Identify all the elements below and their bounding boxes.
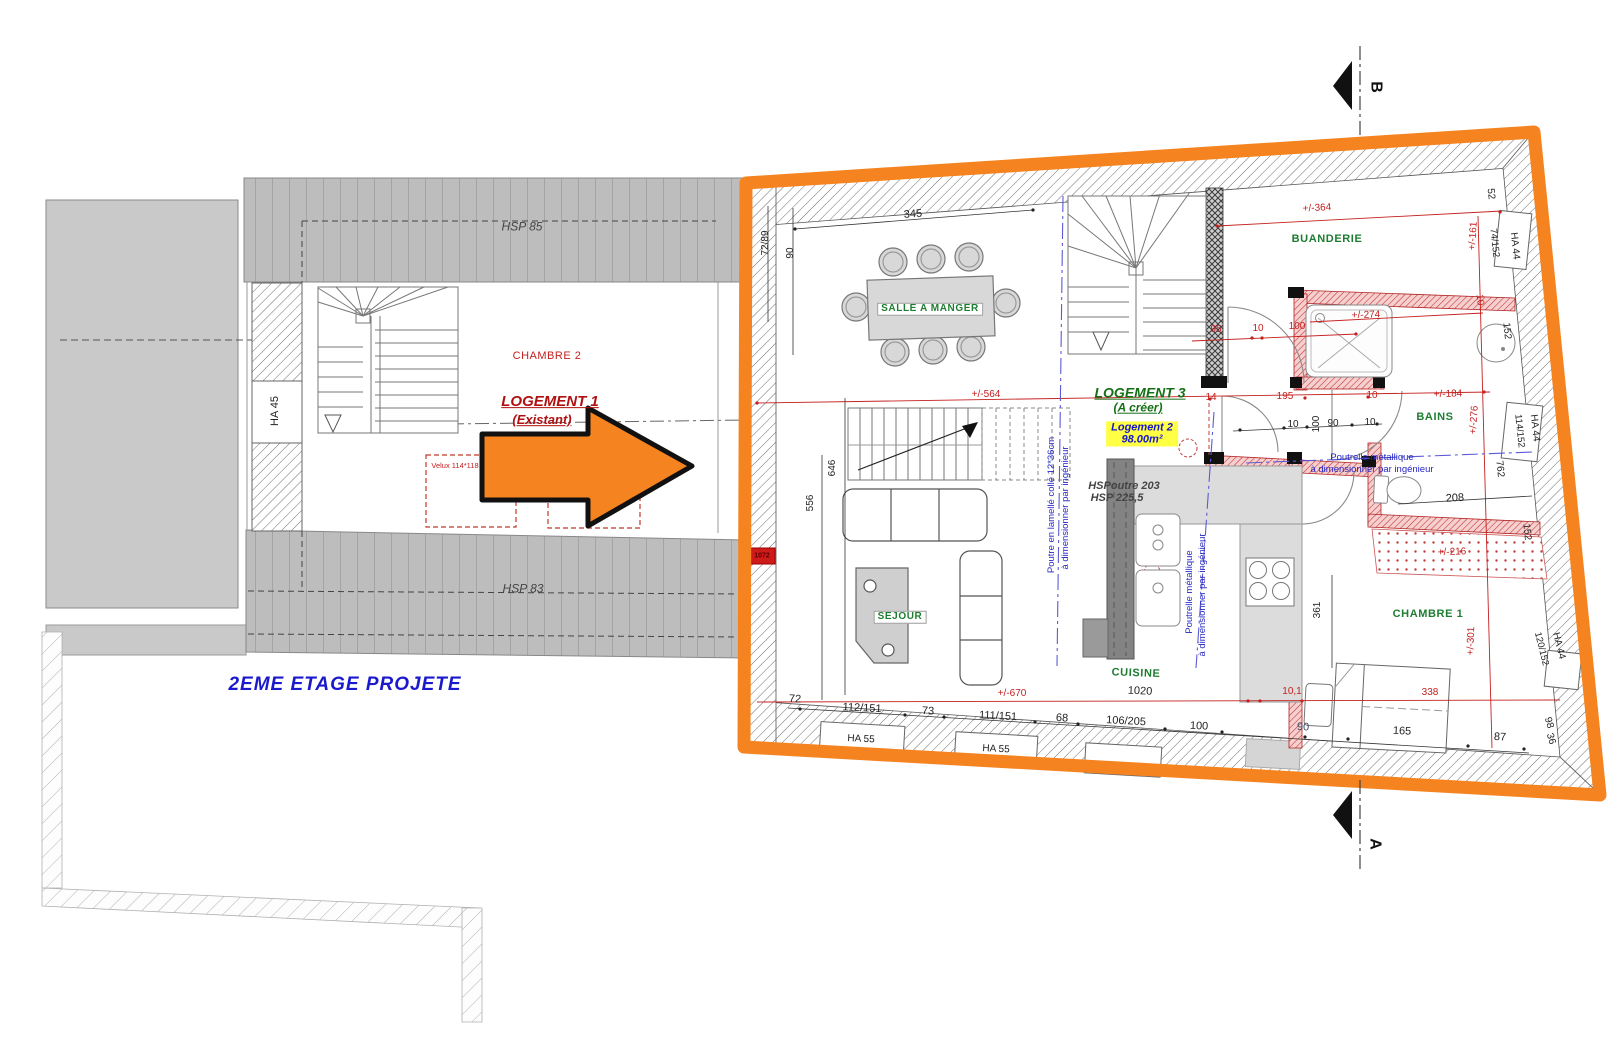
room-label-bedroom: CHAMBRE 1	[1393, 609, 1464, 621]
room-label-bath: BAINS	[1416, 412, 1453, 424]
dim-670: +/-670	[998, 689, 1027, 700]
section-label-b: B	[1367, 81, 1384, 93]
glulam-note-2: à dimensionner par ingénieur	[1061, 446, 1071, 569]
central-staircase	[1068, 192, 1206, 354]
dim-195: 195	[1277, 392, 1294, 403]
dim-646: 646	[828, 460, 839, 477]
dim-165: 165	[1393, 726, 1412, 738]
dim-208: 208	[1446, 493, 1465, 505]
steel-beam-note-h2: à dimensionner par ingénieur	[1310, 465, 1433, 475]
dim-10b: 10	[1366, 391, 1377, 402]
bedroom-furniture	[1332, 663, 1450, 753]
dim-556: 556	[806, 495, 817, 512]
floor-caption: 2EME ETAGE PROJETE	[228, 675, 461, 695]
dim-95: 95	[1210, 325, 1221, 336]
dim-100: 100	[1289, 322, 1306, 333]
dim-1020: 1020	[1127, 686, 1152, 699]
dim-73: 73	[922, 706, 935, 718]
dim-100-bottom: 100	[1190, 721, 1209, 733]
dim-216: +/-216	[1438, 547, 1467, 558]
area-badge-line1: Logement 2	[1111, 422, 1173, 434]
dim-564: +/-564	[972, 390, 1001, 401]
left-plan	[42, 178, 746, 1022]
dim-161: +/-161	[1468, 221, 1480, 250]
roof-band-top	[244, 178, 746, 282]
room-label-living: SEJOUR	[874, 611, 927, 624]
window-ha55-2: HA 55	[982, 744, 1010, 756]
dim-361: 361	[1313, 602, 1324, 619]
dim-101: 10,1	[1282, 687, 1301, 698]
dim-301: +/-301	[1466, 627, 1477, 656]
dim-10d: 10	[1364, 418, 1375, 429]
room-label-chambre2: CHAMBRE 2	[513, 351, 582, 363]
hsp-note: HSP 225,5	[1091, 493, 1144, 505]
logement3-subtitle: (A créer)	[1114, 402, 1163, 415]
logement3-title: LOGEMENT 3	[1094, 386, 1185, 401]
logement1-subtitle: (Existant)	[512, 413, 571, 427]
dim-90-top: 90	[786, 247, 797, 258]
dim-72: 72	[789, 694, 802, 706]
stove	[1246, 558, 1294, 606]
dim-10c: 10	[1287, 420, 1298, 431]
area-badge: Logement 2 98.00m²	[1106, 421, 1178, 446]
dim-90-bottom: 90	[1297, 722, 1310, 734]
room-label-laundry: BUANDERIE	[1292, 234, 1363, 246]
steel-beam-note-v1: Poutrelle métallique	[1185, 550, 1195, 633]
hsp83-label: HSP 83	[503, 583, 544, 596]
terrace-block	[46, 200, 238, 608]
area-badge-line2: 98.00m²	[1111, 434, 1173, 446]
hsp85-label: HSP 85	[502, 221, 543, 234]
steel-beam-note-h1: Poutrelle métallique	[1330, 453, 1413, 463]
velux-label: Velux 114*118	[431, 462, 478, 470]
dim-111151: 111/151	[979, 710, 1018, 724]
dim-106205: 106/205	[1106, 715, 1146, 729]
dim-7289: 72/89	[761, 230, 772, 255]
level-marker-label: 1072	[754, 552, 770, 559]
dim-364: +/-364	[1302, 203, 1331, 215]
dim-10-wall: 10	[1473, 294, 1485, 306]
dim-10a: 10	[1252, 324, 1263, 335]
logement1-title: LOGEMENT 1	[501, 394, 599, 410]
dim-338: 338	[1422, 688, 1439, 699]
dim-152b: 152	[1520, 523, 1532, 541]
section-label-a: A	[1366, 838, 1383, 850]
floor-plan-page: HSP 85 HA 45 CHAMBRE 2 LOGEMENT 1 (Exist…	[0, 0, 1620, 1045]
dim-112151: 112/151	[842, 702, 882, 716]
bearing-wall	[1206, 188, 1223, 380]
dim-87: 87	[1494, 732, 1507, 744]
dim-68: 68	[1056, 713, 1069, 725]
room-label-dining: SALLE A MANGER	[877, 303, 983, 316]
left-staircase	[318, 287, 458, 433]
dim-114152: 114/152	[1512, 414, 1525, 448]
steel-beam-note-v2: à dimensionner par ingénieur	[1198, 533, 1208, 656]
window-ha44-mid: HA 44	[1527, 414, 1540, 442]
window-ha44-top: HA 44	[1507, 232, 1520, 260]
room-label-kitchen: CUISINE	[1111, 667, 1160, 680]
dim-52: 52	[1484, 188, 1496, 200]
dim-276: +/-276	[1469, 405, 1481, 434]
ha45-window-label: HA 45	[270, 396, 282, 426]
terrace-strip	[46, 625, 246, 655]
dim-74152: 74/152	[1488, 228, 1501, 258]
dim-762: 762	[1493, 460, 1505, 478]
dim-100-rot: 100	[1312, 416, 1323, 433]
dim-345: 345	[903, 209, 922, 222]
dim-184: +/-184	[1434, 389, 1463, 400]
dim-152a: 152	[1500, 322, 1512, 340]
dim-14: 14	[1205, 393, 1216, 404]
glulam-note-1: Poutre en lamellé collé 12*36cm	[1047, 437, 1057, 573]
window-ha55-1: HA 55	[847, 734, 875, 746]
dim-274: +/-274	[1352, 310, 1381, 321]
hspoutre-note: HSPoutre 203	[1088, 481, 1160, 493]
floor-plan-drawing	[0, 0, 1620, 1045]
dim-90-mid: 90	[1327, 419, 1338, 430]
